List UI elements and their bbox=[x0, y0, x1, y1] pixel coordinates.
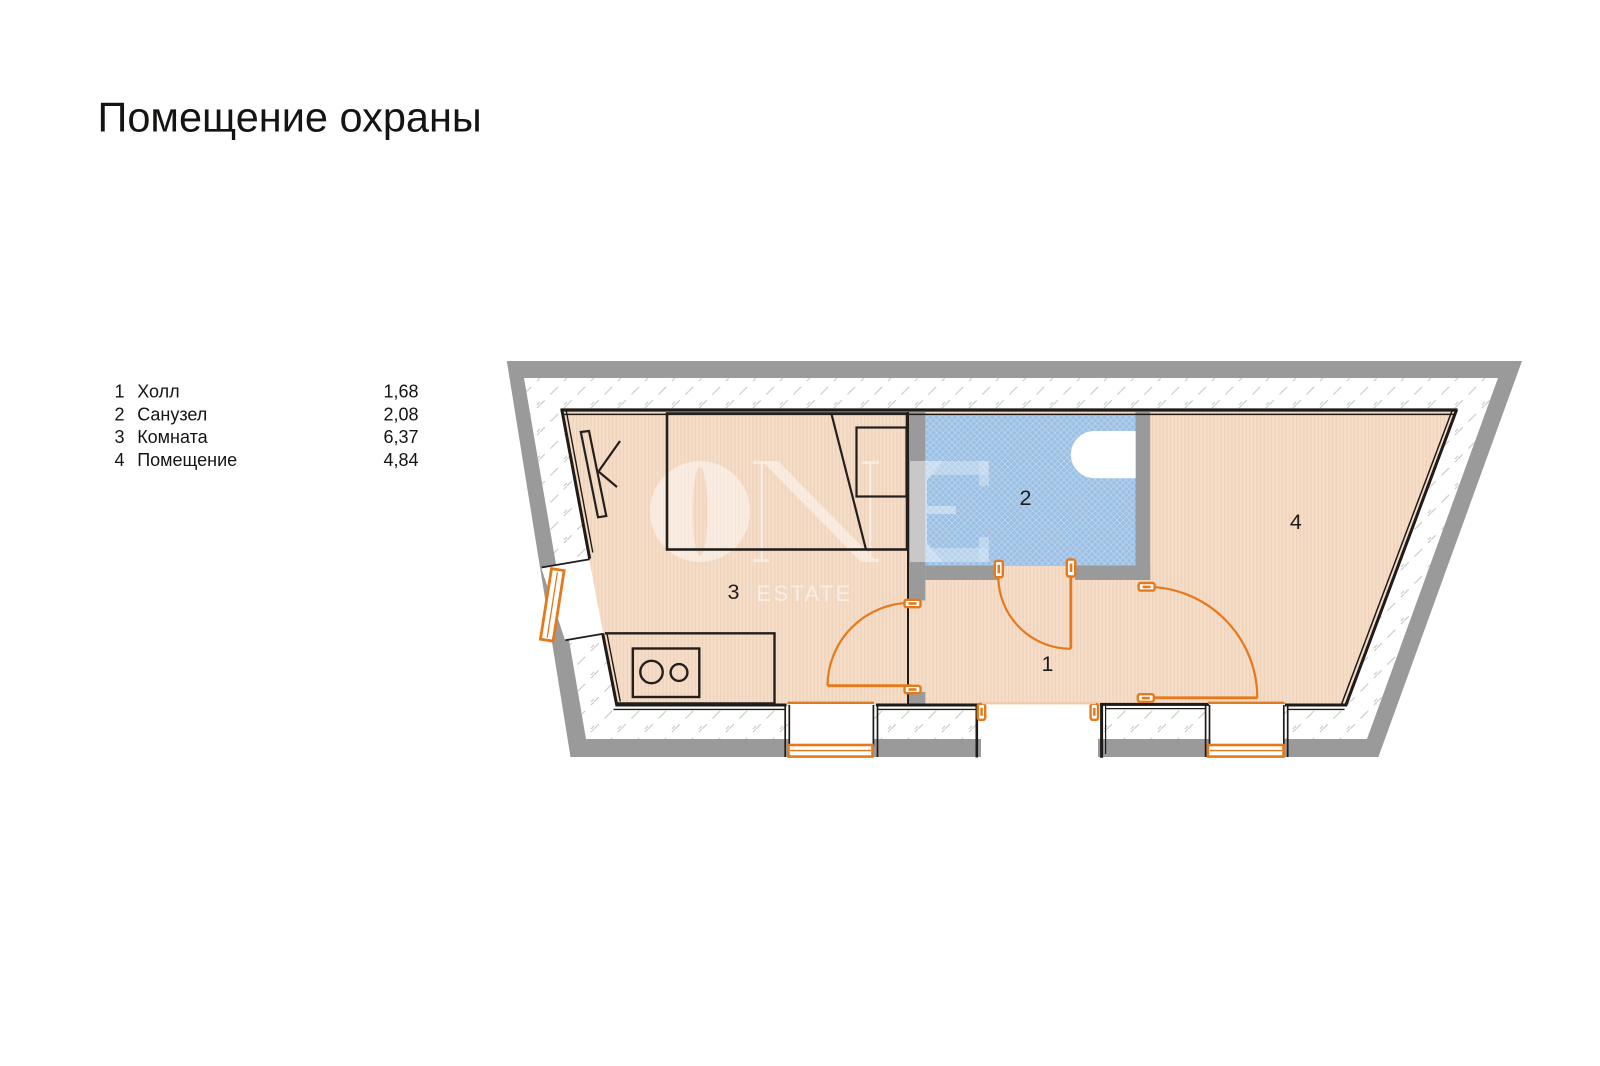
svg-text:Холл: Холл bbox=[137, 382, 179, 402]
svg-text:1: 1 bbox=[115, 382, 125, 402]
svg-text:4: 4 bbox=[1290, 510, 1302, 534]
svg-text:Комната: Комната bbox=[137, 427, 208, 447]
svg-text:4,84: 4,84 bbox=[384, 450, 419, 470]
svg-text:Санузел: Санузел bbox=[137, 404, 207, 424]
svg-text:Помещение: Помещение bbox=[137, 450, 237, 470]
svg-text:1,68: 1,68 bbox=[384, 382, 419, 402]
svg-text:2: 2 bbox=[115, 404, 125, 424]
svg-text:3: 3 bbox=[728, 580, 740, 604]
svg-text:Помещение охраны: Помещение охраны bbox=[98, 94, 482, 141]
svg-text:3: 3 bbox=[115, 427, 125, 447]
svg-text:6,37: 6,37 bbox=[384, 427, 419, 447]
svg-text:2: 2 bbox=[1020, 486, 1032, 510]
svg-text:4: 4 bbox=[115, 450, 125, 470]
svg-text:1: 1 bbox=[1042, 652, 1054, 676]
svg-text:ESTATE: ESTATE bbox=[757, 581, 853, 606]
svg-text:2,08: 2,08 bbox=[384, 404, 419, 424]
